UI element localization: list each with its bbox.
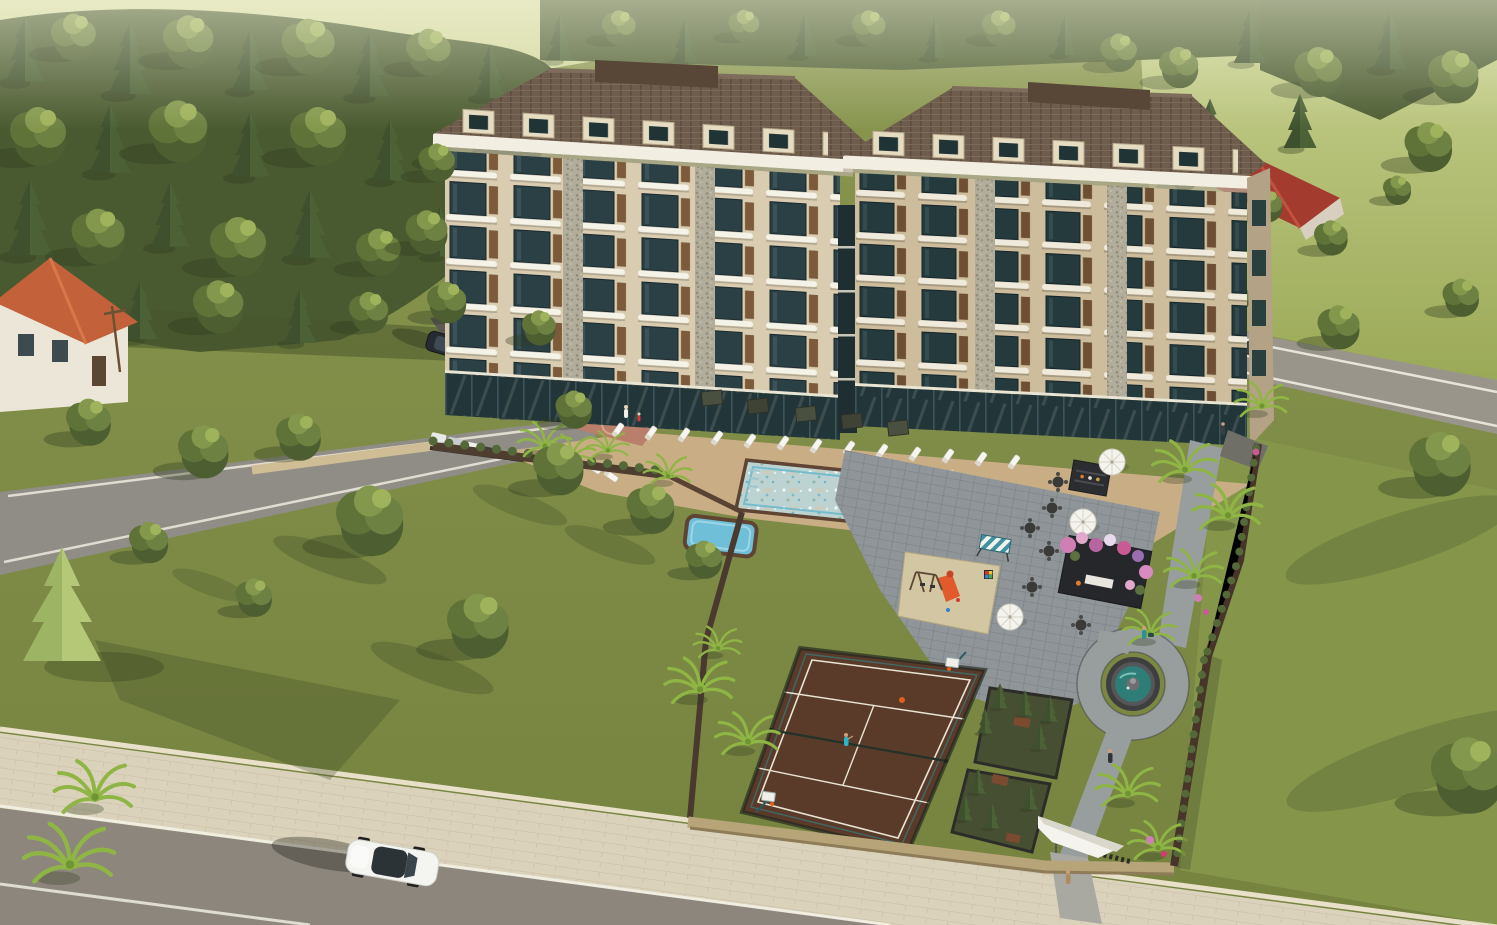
building-left [433,60,870,441]
render-canvas [0,0,1497,925]
fountain [1106,657,1160,711]
facade-windows [855,173,1247,405]
stone-pier [695,167,715,389]
building-connector [838,205,857,433]
stone-pier [975,179,995,392]
patio-umbrella [701,390,722,406]
stone-pier [1107,186,1127,399]
patio-umbrella [887,420,908,436]
stone-pier [563,158,583,380]
person-adult-poolside [624,405,628,418]
building-right [843,82,1274,447]
ball [899,697,905,703]
person-right-path [1221,422,1225,435]
person-child-red [638,413,641,422]
person-path-walker [1108,749,1113,763]
child [946,608,950,612]
patio-umbrella [841,413,862,429]
south-wall [1045,866,1174,868]
facade-windows [445,151,840,397]
play-cube [984,570,993,579]
child [956,598,960,602]
person-gate-pedestrian [1066,870,1071,884]
patio-umbrella [795,406,816,422]
architectural-render: Aerial 3D architectural rendering of a g… [0,0,1497,925]
patio-umbrella [747,398,768,414]
